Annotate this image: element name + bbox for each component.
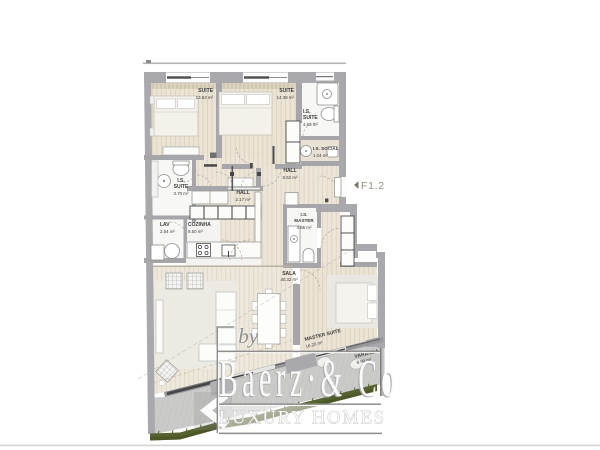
svg-text:HALL: HALL xyxy=(283,168,296,174)
svg-text:MASTER: MASTER xyxy=(294,218,314,223)
svg-text:2.17 m²: 2.17 m² xyxy=(236,197,251,202)
svg-text:13.63 m²: 13.63 m² xyxy=(196,95,214,100)
svg-text:8.52 m²: 8.52 m² xyxy=(283,175,298,180)
svg-text:SUITE: SUITE xyxy=(303,115,318,121)
svg-text:4.63 m²: 4.63 m² xyxy=(303,122,318,127)
svg-text:4.65 m²: 4.65 m² xyxy=(297,225,312,230)
svg-text:3.70 m²: 3.70 m² xyxy=(174,191,189,196)
svg-text:HALL: HALL xyxy=(236,190,249,196)
svg-text:by: by xyxy=(238,324,259,348)
svg-text:Baerz·& Co: Baerz·& Co xyxy=(219,350,400,409)
svg-text:LUXURY HOMES: LUXURY HOMES xyxy=(219,408,387,428)
svg-text:1.04 m²: 1.04 m² xyxy=(313,153,328,158)
svg-text:SUITE: SUITE xyxy=(198,88,213,94)
svg-text:I.S. SOCIAL: I.S. SOCIAL xyxy=(313,146,339,151)
svg-text:8.50 m²: 8.50 m² xyxy=(188,229,203,234)
svg-text:SUITE: SUITE xyxy=(279,88,294,94)
svg-text:SUITE: SUITE xyxy=(174,184,189,190)
svg-text:40.32 m²: 40.32 m² xyxy=(280,277,298,282)
svg-text:I.S.: I.S. xyxy=(301,212,308,217)
svg-text:14.38 m²: 14.38 m² xyxy=(277,95,295,100)
svg-text:LAV: LAV xyxy=(160,222,170,228)
svg-text:2.54 m²: 2.54 m² xyxy=(160,229,175,234)
svg-text:F1.2: F1.2 xyxy=(361,180,385,192)
svg-text:COZINHA: COZINHA xyxy=(188,222,211,228)
